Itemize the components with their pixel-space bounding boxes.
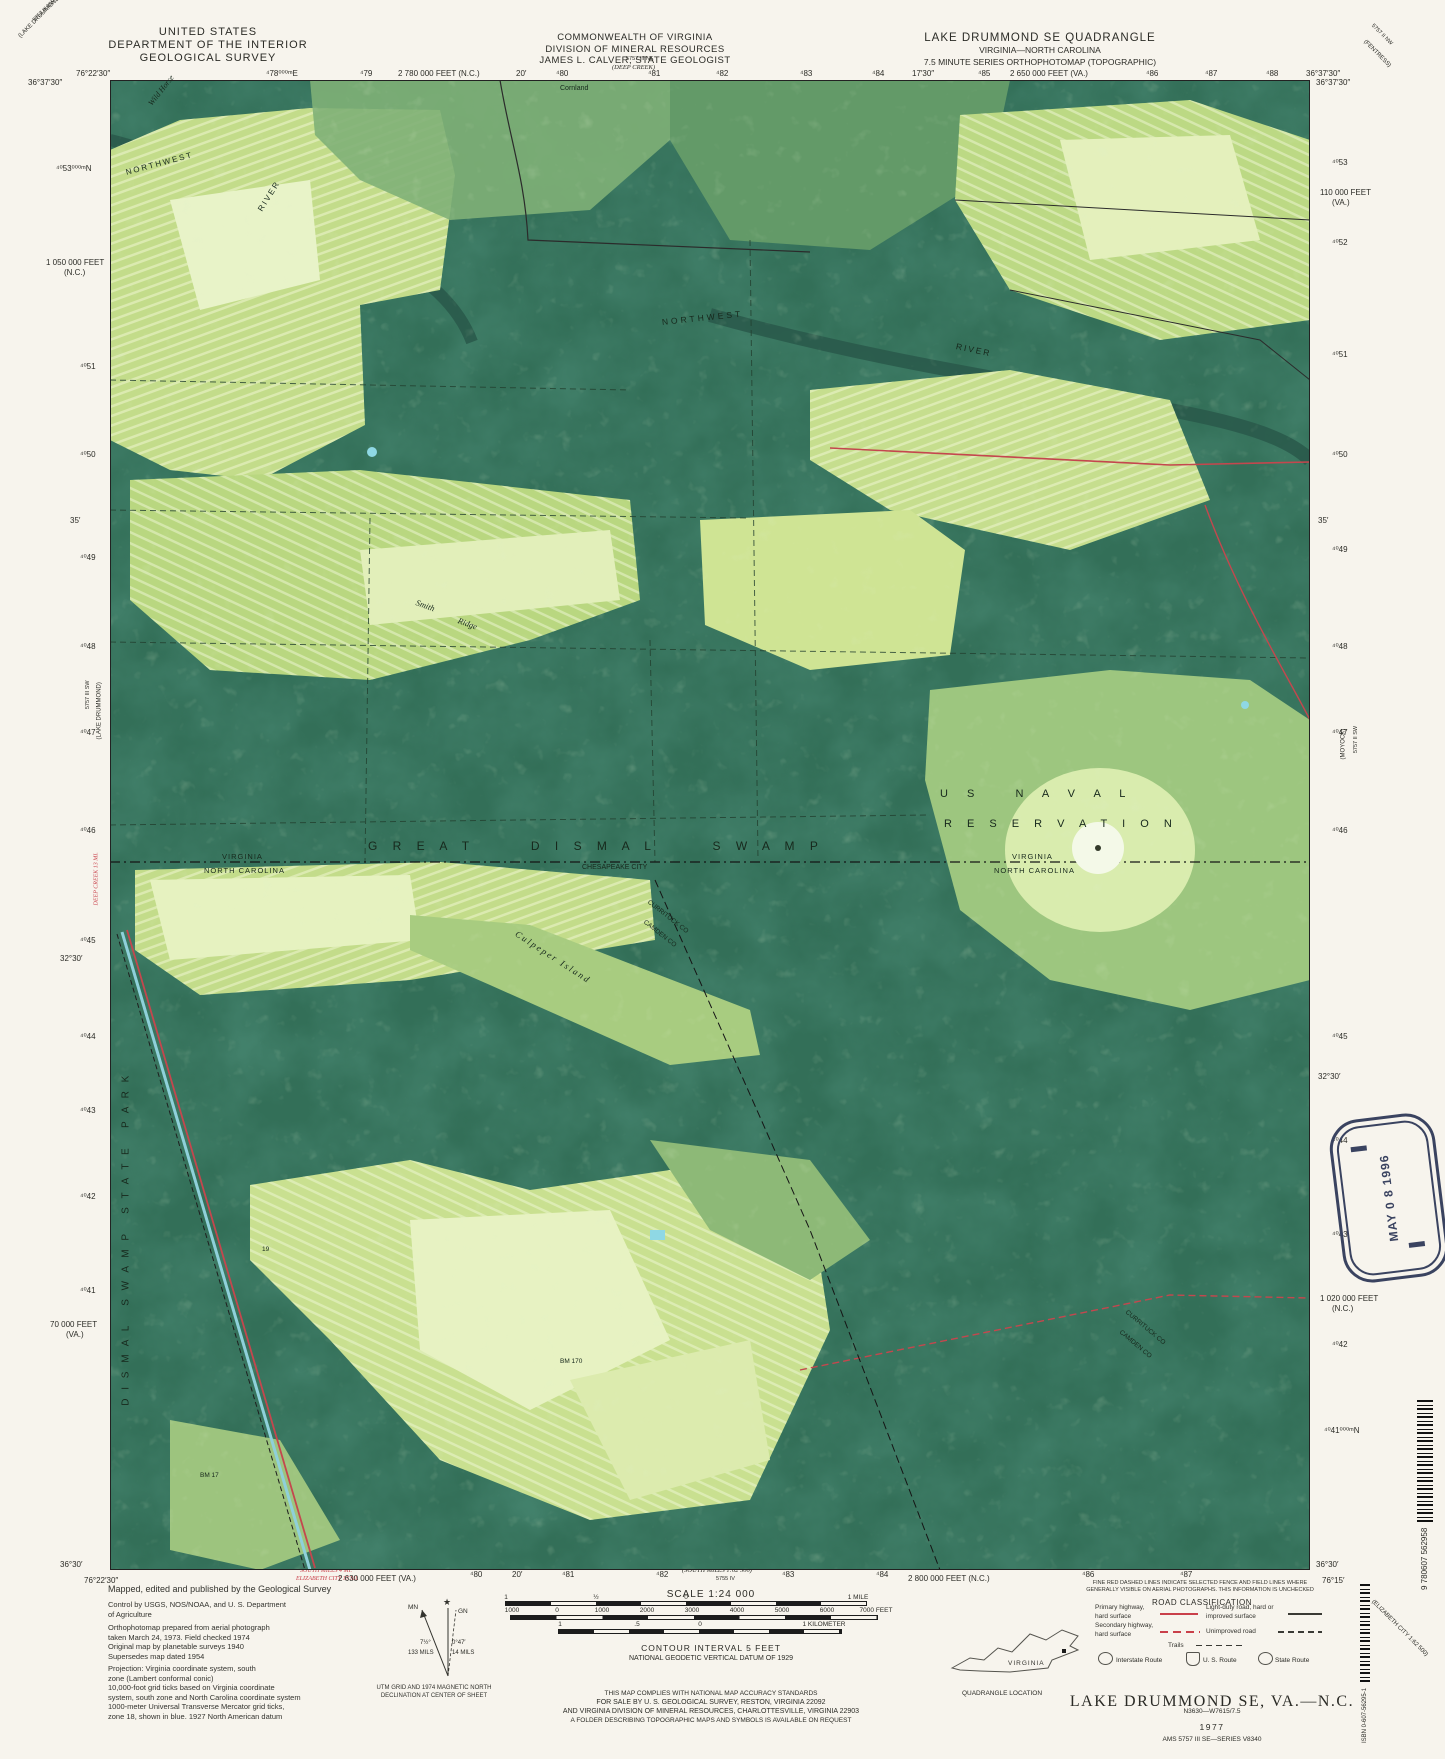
- map-place-label: U S N A V A L: [940, 788, 1133, 801]
- tick-label: ⁴⁰42: [1332, 1340, 1348, 1349]
- tick-label: 20′: [512, 1570, 522, 1579]
- tick-label: ⁴⁰49: [1332, 545, 1348, 554]
- adjoining-label: (MOYOCK): [1341, 729, 1348, 760]
- tick-label: (N.C.): [64, 268, 85, 277]
- stamp-glyph-bar: [1409, 1241, 1425, 1248]
- tick-label: (VA.): [1332, 198, 1350, 207]
- sheet-series: AMS 5757 III SE—SERIES V8340: [1163, 1736, 1262, 1743]
- scale-bar-label: 4000: [730, 1607, 744, 1614]
- credits-control: Control by USGS, NOS/NOAA, and U. S. Dep…: [108, 1600, 286, 1619]
- scale-bar-label: 1: [558, 1621, 562, 1628]
- ean-barcode: 9 780607 562958: [1405, 1400, 1445, 1590]
- tick-label: 2 780 000 FEET (N.C.): [398, 69, 480, 78]
- tick-label: ⁴87: [1205, 69, 1217, 78]
- adjoining-label: 5757 III SW: [85, 680, 91, 709]
- header-agency: UNITED STATES DEPARTMENT OF THE INTERIOR…: [88, 26, 328, 65]
- interstate-route-icon: [1098, 1652, 1113, 1665]
- tick-label: ⁴80: [470, 1570, 482, 1579]
- map-place-label: R E S E R V A T I O N: [944, 818, 1178, 831]
- road-class-secondary: Secondary highway, hard surface: [1095, 1622, 1153, 1639]
- map-place-label: BM 170: [560, 1358, 582, 1365]
- tick-label: 110 000 FEET: [1320, 188, 1371, 197]
- scale-bar-label: 1 MILE: [848, 1594, 869, 1601]
- tick-label: ⁴85: [978, 69, 990, 78]
- isbn-number: ISBN 0-607-56295-1: [1362, 1688, 1369, 1743]
- tick-label: 2 630 000 FEET (VA.): [338, 1574, 416, 1583]
- map-place-label: VIRGINIA: [222, 853, 263, 862]
- isbn-barcode: ISBN 0-607-56295-1: [1354, 1583, 1376, 1743]
- tick-label: ⁴⁰49: [80, 553, 96, 562]
- map-place-label: NORTH CAROLINA: [204, 867, 285, 876]
- scale-bar-label: 3000: [685, 1607, 699, 1614]
- tick-label: ⁴⁰42: [80, 1192, 96, 1201]
- scale-bar-label: 0: [684, 1594, 688, 1601]
- scale-bar-label: .5: [634, 1621, 639, 1628]
- virginia-state-label: VIRGINIA: [1008, 1660, 1045, 1667]
- tick-label: ⁴⁰52: [1332, 238, 1348, 247]
- tick-label: ⁴⁰48: [80, 642, 96, 651]
- sheet-id: N3630—W7615/7.5: [1183, 1708, 1240, 1715]
- accuracy-line2: FOR SALE BY U. S. GEOLOGICAL SURVEY, RES…: [596, 1699, 825, 1707]
- adjoining-label: 5757 III NE: [626, 56, 654, 62]
- tick-label: ⁴⁰46: [1332, 826, 1348, 835]
- road-class-lightduty: Light-duty road, hard or improved surfac…: [1206, 1604, 1274, 1621]
- tick-label: (N.C.): [1332, 1304, 1353, 1313]
- interstate-route-label: Interstate Route: [1116, 1657, 1162, 1664]
- scale-bar-label: 1: [504, 1594, 508, 1601]
- sheet-year: 1977: [1200, 1723, 1225, 1733]
- tick-label: 17′30″: [912, 69, 934, 78]
- tick-label: 1 050 000 FEET: [46, 258, 104, 267]
- adjoining-label: 5757 II NW: [1370, 23, 1394, 47]
- map-place-label: D I S M A L S W A M P S T A T E P A R K: [120, 1073, 132, 1406]
- date-stamp-border: MAY 0 8 1996: [1334, 1118, 1444, 1278]
- tick-label: 20′: [516, 69, 526, 78]
- tick-label: ⁴78⁰⁰⁰ᵐE: [266, 69, 298, 78]
- tick-label: 32°30′: [1318, 1072, 1341, 1081]
- declination-caption: UTM GRID AND 1974 MAGNETIC NORTH DECLINA…: [376, 1684, 492, 1700]
- header-agency-line3: GEOLOGICAL SURVEY: [88, 52, 328, 65]
- trails-symbol: [1196, 1645, 1246, 1646]
- scale-bar-label: 7000 FEET: [860, 1607, 893, 1614]
- adjoining-label: (LAKE DRUMMOND): [97, 682, 104, 739]
- road-class-unimproved: Unimproved road: [1206, 1627, 1256, 1637]
- svg-text:★: ★: [443, 1597, 451, 1607]
- header-quad-line1: LAKE DRUMMOND SE QUADRANGLE: [870, 32, 1210, 44]
- unimproved-road-symbol: [1278, 1631, 1322, 1633]
- tick-label: 76°22′30″: [76, 69, 110, 78]
- header-agency-line1: UNITED STATES: [88, 26, 328, 39]
- tick-label: ⁴⁰48: [1332, 642, 1348, 651]
- stamp-glyph-bar: [1351, 1145, 1367, 1152]
- scale-bar-label: ½: [593, 1594, 598, 1601]
- adjoining-label: (ELIZABETH CITY 1:62 500): [1370, 1599, 1429, 1658]
- adjoining-label: (DEEP CREEK): [612, 64, 655, 71]
- lightduty-road-symbol: [1288, 1613, 1322, 1615]
- tick-label: ⁴79: [360, 69, 372, 78]
- tick-label: 5755 IV: [716, 1576, 735, 1582]
- header-quad-line2: VIRGINIA—NORTH CAROLINA: [870, 44, 1210, 56]
- date-stamp-text: MAY 0 8 1996: [1377, 1154, 1402, 1242]
- map-place-label: BM 17: [200, 1472, 219, 1479]
- tick-label: 70 000 FEET: [50, 1320, 97, 1329]
- tick-label: ⁴86: [1082, 1570, 1094, 1579]
- scale-bar-label: 5000: [775, 1607, 789, 1614]
- map-place-label: CHESAPEAKE CITY: [582, 864, 647, 872]
- declination-mn-degrees: 7½°: [420, 1640, 431, 1647]
- tick-label: ⁴⁰44: [80, 1032, 96, 1041]
- tick-label: ⁴83: [800, 69, 812, 78]
- map-place-label: 19: [262, 1246, 269, 1253]
- ean-number: 9 780607 562958: [1420, 1528, 1429, 1590]
- map-place-label: VIRGINIA: [1012, 853, 1053, 862]
- tick-label: 32°30′: [60, 954, 83, 963]
- tick-label: ⁴⁰53: [1332, 158, 1348, 167]
- tick-label: 36°37′30″: [28, 78, 62, 87]
- map-place-label: Cornland: [560, 85, 588, 93]
- tick-label: ⁴82: [716, 69, 728, 78]
- scale-bar-miles: [505, 1601, 867, 1606]
- declination-gn-mils: 14 MILS: [452, 1650, 474, 1657]
- scale-bar-label: 6000: [820, 1607, 834, 1614]
- tick-label: ⁴⁰47: [80, 728, 96, 737]
- tick-label: 2 650 000 FEET (VA.): [1010, 69, 1088, 78]
- header-state-line2: DIVISION OF MINERAL RESOURCES: [500, 44, 770, 56]
- map-place-label: NORTH CAROLINA: [994, 867, 1075, 876]
- tick-label: ⁴84: [872, 69, 884, 78]
- tick-label: ⁴86: [1146, 69, 1158, 78]
- scale-bar-feet: [510, 1615, 878, 1620]
- state-route-icon: [1258, 1652, 1273, 1665]
- tick-label: (VA.): [66, 1330, 84, 1339]
- isbn-bars: [1360, 1583, 1370, 1682]
- scale-bar-label: 2000: [640, 1607, 654, 1614]
- primary-highway-symbol: [1160, 1613, 1198, 1615]
- map-place-label: G R E A T D I S M A L S W A M P: [368, 840, 824, 854]
- tick-label: ⁴83: [782, 1570, 794, 1579]
- tick-label: ⁴⁰53⁰⁰⁰ᵐN: [56, 164, 92, 173]
- scale-bar-label: 0: [698, 1621, 702, 1628]
- tick-label: ⁴⁰41⁰⁰⁰ᵐN: [1324, 1426, 1360, 1435]
- tick-label: ⁴⁰51: [1332, 350, 1348, 359]
- header-agency-line2: DEPARTMENT OF THE INTERIOR: [88, 39, 328, 52]
- tick-label: 35′: [1318, 516, 1328, 525]
- tick-label: ⁴⁰51: [80, 362, 96, 371]
- tick-label: 36°30′: [60, 1560, 83, 1569]
- adjoining-label: 5757 II SW: [1353, 726, 1359, 753]
- scale-bar-label: 1 KILOMETER: [803, 1621, 846, 1628]
- tick-label: 35′: [70, 516, 80, 525]
- us-route-label: U. S. Route: [1203, 1657, 1237, 1664]
- us-route-shield-icon: [1186, 1652, 1200, 1666]
- tick-label: ⁴⁰50: [80, 450, 96, 459]
- header-state-line1: COMMONWEALTH OF VIRGINIA: [500, 32, 770, 44]
- quadrangle-location-caption: QUADRANGLE LOCATION: [962, 1690, 1042, 1697]
- date-stamp: MAY 0 8 1996: [1326, 1110, 1445, 1286]
- tick-label: 36°30′: [1316, 1560, 1339, 1569]
- header-quad: LAKE DRUMMOND SE QUADRANGLE VIRGINIA—NOR…: [870, 32, 1210, 68]
- tick-label: ⁴84: [876, 1570, 888, 1579]
- credits-orthophoto: Orthophotomap prepared from aerial photo…: [108, 1623, 270, 1661]
- declination-gn-label: GN: [458, 1608, 468, 1615]
- tick-label: ⁴80: [556, 69, 568, 78]
- declination-mn-mils: 133 MILS: [408, 1650, 434, 1657]
- scale-bar-label: 1000: [505, 1607, 519, 1614]
- adjoining-label: DEEP CREEK 13 MI.: [94, 852, 101, 905]
- scale-bar-label: 1000: [595, 1607, 609, 1614]
- tick-label: 2 800 000 FEET (N.C.): [908, 1574, 990, 1583]
- credits-projection: Projection: Virginia coordinate system, …: [108, 1664, 301, 1721]
- fence-note: FINE RED DASHED LINES INDICATE SELECTED …: [1000, 1580, 1400, 1594]
- virginia-outline: VIRGINIA: [950, 1622, 1100, 1682]
- state-route-label: State Route: [1275, 1657, 1309, 1664]
- header-quad-line3: 7.5 MINUTE SERIES ORTHOPHOTOMAP (TOPOGRA…: [870, 56, 1210, 68]
- tick-label: 1 020 000 FEET: [1320, 1294, 1378, 1303]
- contour-interval: CONTOUR INTERVAL 5 FEET: [641, 1644, 781, 1654]
- credits-mapped-by: Mapped, edited and published by the Geol…: [108, 1585, 331, 1595]
- map-sheet: UNITED STATES DEPARTMENT OF THE INTERIOR…: [0, 0, 1445, 1759]
- vertical-datum: NATIONAL GEODETIC VERTICAL DATUM OF 1929: [629, 1655, 793, 1663]
- road-class-trails: Trails: [1168, 1641, 1184, 1651]
- ean-bars: [1417, 1400, 1433, 1522]
- secondary-highway-symbol: [1160, 1631, 1200, 1633]
- tick-label: ⁴88: [1266, 69, 1278, 78]
- tick-label: ⁴⁰41: [80, 1286, 96, 1295]
- declination-mn-label: MN: [408, 1604, 418, 1611]
- declination-gn-degrees: 0°47′: [452, 1640, 466, 1647]
- tick-label: ⁴82: [656, 1570, 668, 1579]
- tick-label: ⁴⁰45: [80, 936, 96, 945]
- scale-label: SCALE 1:24 000: [667, 1589, 756, 1601]
- tick-label: ⁴⁰46: [80, 826, 96, 835]
- accuracy-line4: A FOLDER DESCRIBING TOPOGRAPHIC MAPS AND…: [571, 1717, 852, 1724]
- tick-label: ⁴⁰45: [1332, 1032, 1348, 1041]
- tick-label: 36°37′30″: [1306, 69, 1340, 78]
- accuracy-line1: THIS MAP COMPLIES WITH NATIONAL MAP ACCU…: [605, 1690, 818, 1697]
- tick-label: ⁴87: [1180, 1570, 1192, 1579]
- tick-label: ⁴81: [562, 1570, 574, 1579]
- tick-label: ⁴⁰43: [80, 1106, 96, 1115]
- scale-bar-label: 0: [555, 1607, 559, 1614]
- tick-label: ⁴⁰50: [1332, 450, 1348, 459]
- road-class-primary: Primary highway, hard surface: [1095, 1604, 1144, 1621]
- tick-label: 36°37′30″: [1316, 78, 1350, 87]
- scale-bar-kilometers: [558, 1629, 842, 1634]
- accuracy-line3: AND VIRGINIA DIVISION OF MINERAL RESOURC…: [563, 1708, 859, 1716]
